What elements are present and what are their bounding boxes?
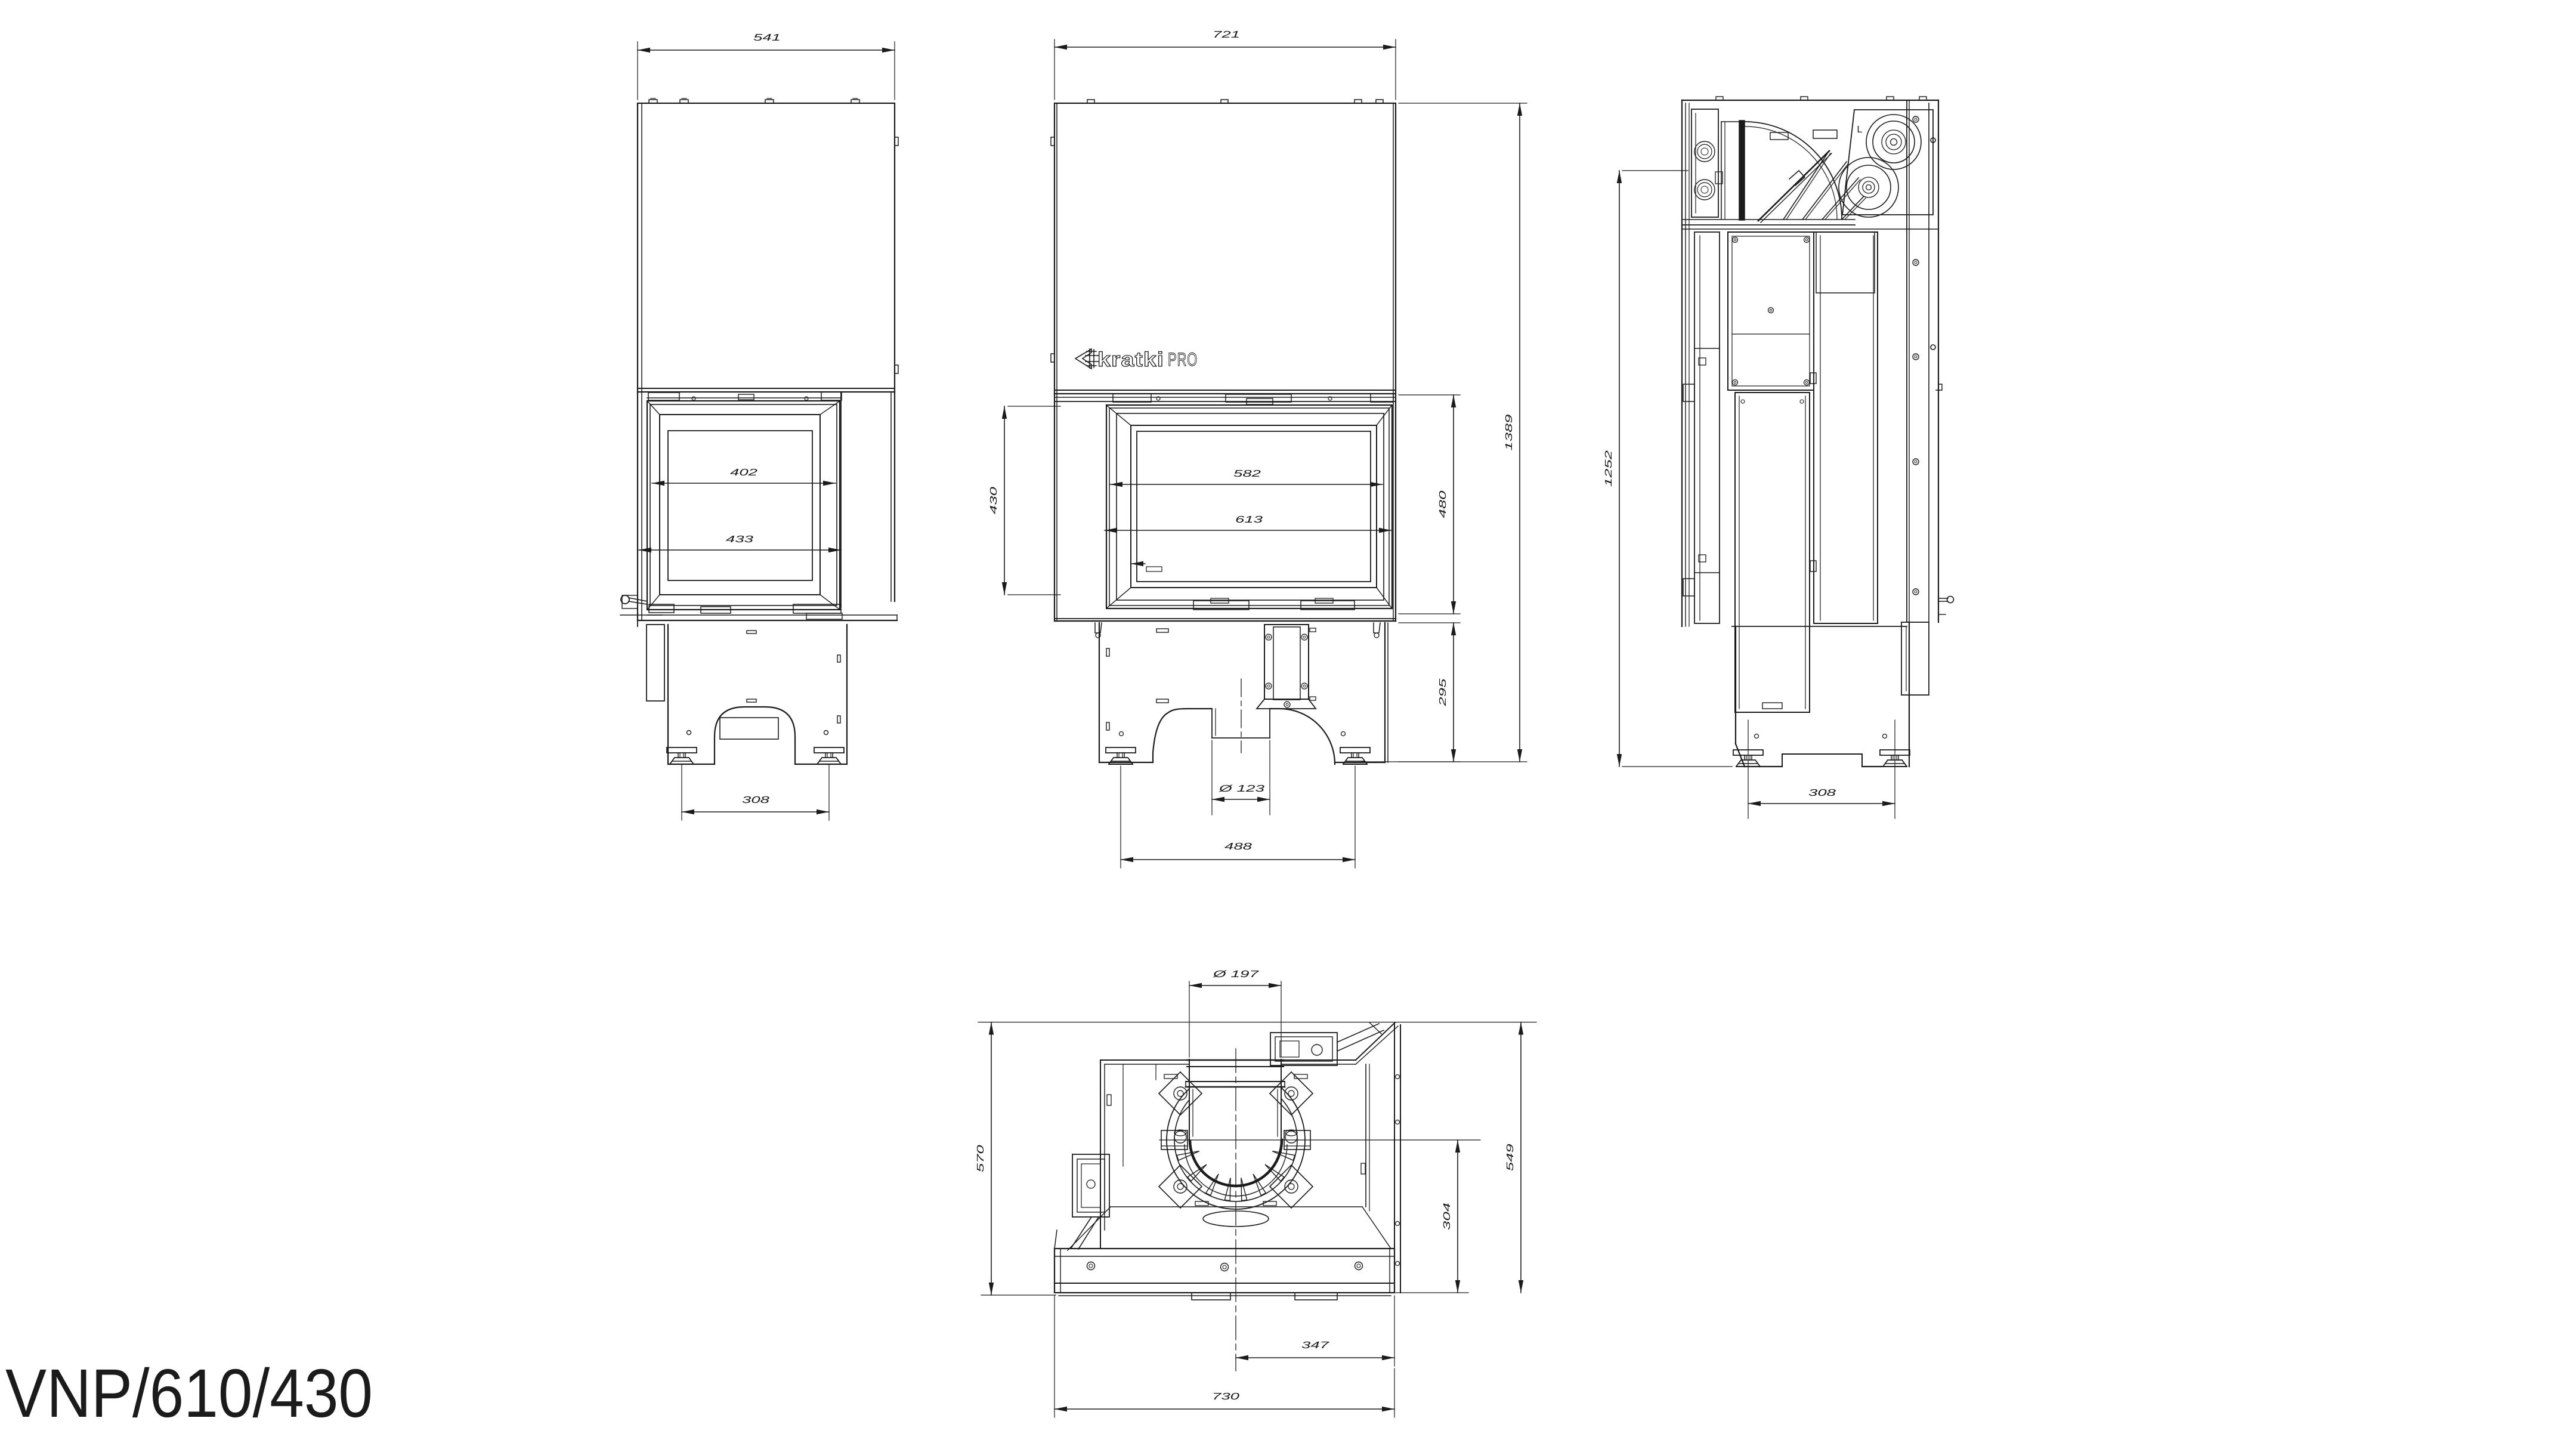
svg-text:308: 308 <box>742 795 769 805</box>
svg-text:PRO: PRO <box>1168 349 1198 370</box>
svg-text:VNP/610/430: VNP/610/430 <box>5 1355 373 1432</box>
svg-text:730: 730 <box>1212 1392 1239 1402</box>
svg-text:549: 549 <box>1505 1144 1516 1171</box>
svg-text:582: 582 <box>1233 469 1261 479</box>
svg-text:480: 480 <box>1438 490 1448 518</box>
svg-text:541: 541 <box>753 33 781 43</box>
svg-text:295: 295 <box>1438 678 1448 707</box>
svg-text:Ø 123: Ø 123 <box>1218 784 1264 794</box>
svg-text:347: 347 <box>1301 1340 1330 1351</box>
svg-text:Ø 197: Ø 197 <box>1212 969 1260 980</box>
svg-text:kratki: kratki <box>1097 348 1164 371</box>
svg-text:308: 308 <box>1808 788 1836 798</box>
svg-text:488: 488 <box>1224 842 1252 852</box>
svg-text:L: L <box>1857 125 1863 135</box>
svg-text:570: 570 <box>976 1145 986 1172</box>
svg-text:1252: 1252 <box>1604 450 1614 487</box>
svg-text:402: 402 <box>730 468 757 478</box>
svg-text:430: 430 <box>989 487 999 514</box>
svg-text:613: 613 <box>1235 515 1263 525</box>
svg-text:433: 433 <box>726 535 753 545</box>
svg-text:721: 721 <box>1213 30 1240 40</box>
svg-text:304: 304 <box>1442 1203 1452 1230</box>
svg-text:1389: 1389 <box>1504 414 1514 450</box>
